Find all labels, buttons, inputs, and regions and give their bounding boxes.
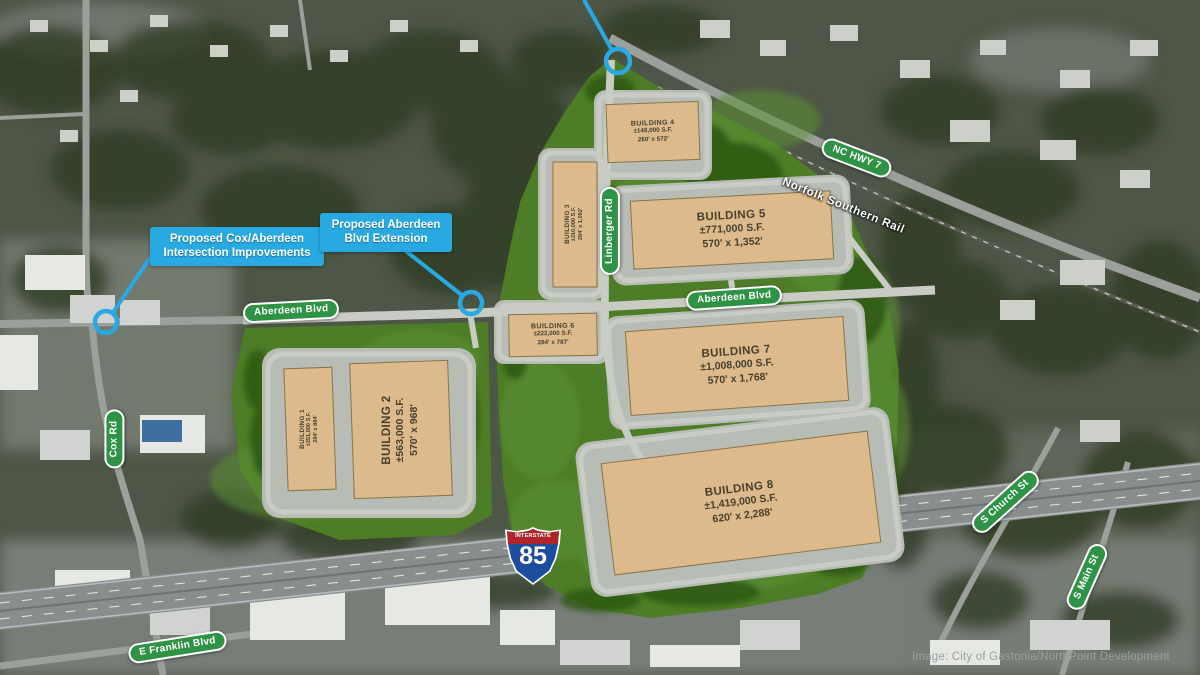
site-plan-map: BUILDING 1 ±251,000 S.F. 284' x 884' BUI… xyxy=(0,0,1200,675)
satellite-map-graphic xyxy=(0,0,1200,675)
